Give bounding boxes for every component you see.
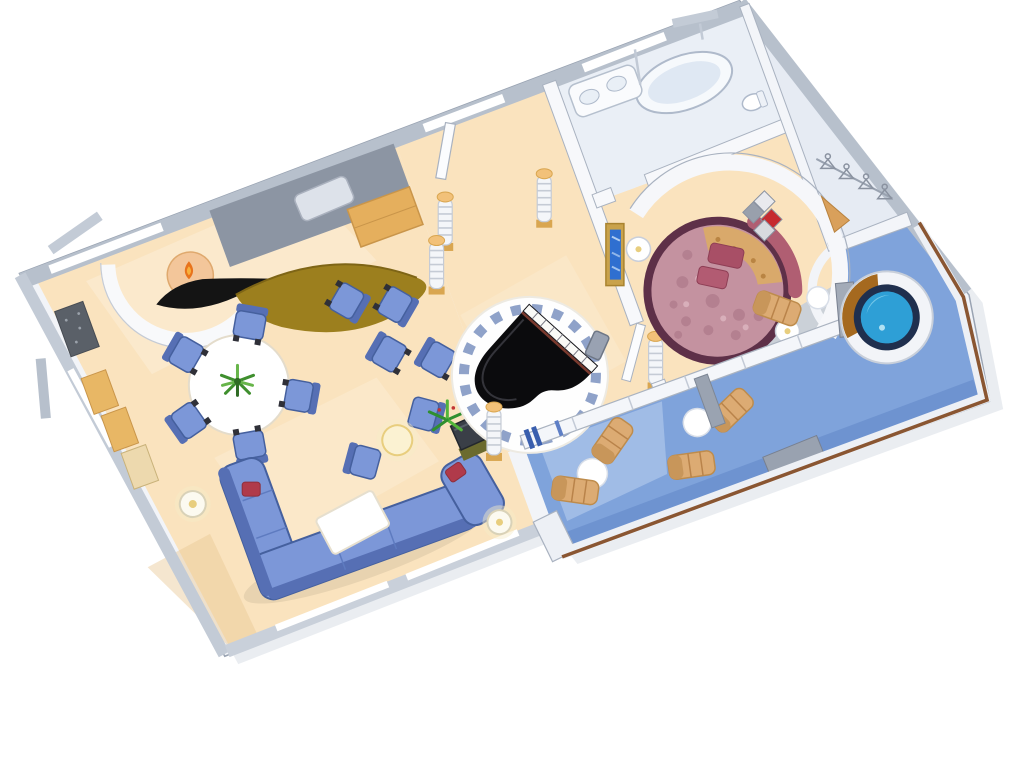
floor-plan-illustration bbox=[0, 0, 1024, 768]
floor-plan-canvas bbox=[0, 0, 1024, 768]
suite-scene bbox=[0, 0, 1019, 720]
striped-column bbox=[536, 169, 552, 228]
red-cushion bbox=[242, 482, 260, 496]
wall-flap bbox=[36, 358, 51, 419]
bedroom-wall-tv bbox=[606, 224, 624, 286]
striped-column bbox=[429, 236, 445, 295]
striped-column bbox=[486, 402, 502, 461]
